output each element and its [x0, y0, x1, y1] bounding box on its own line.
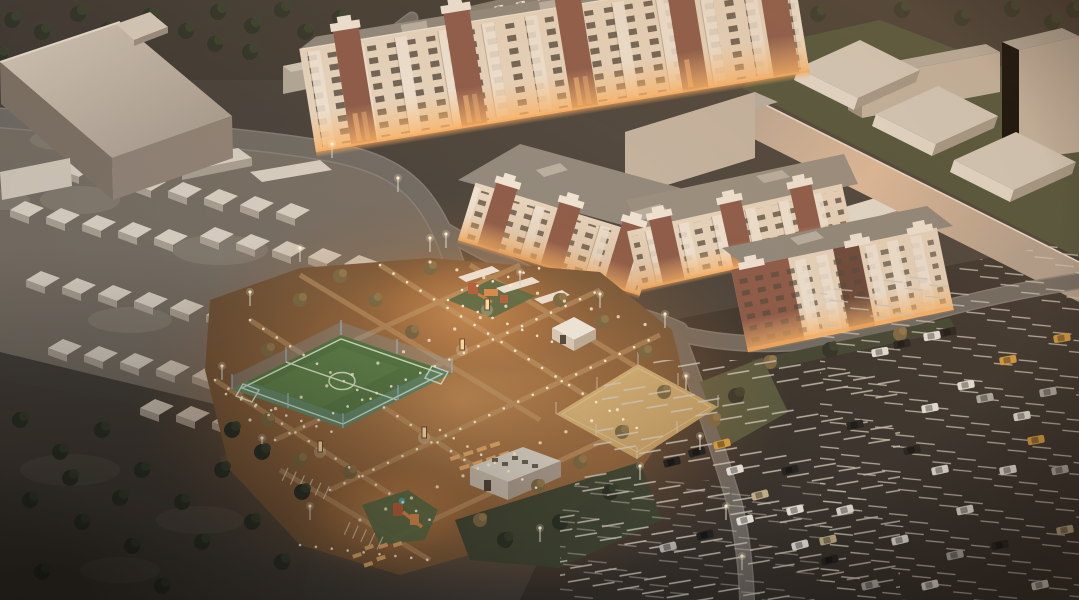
scene-render: 3d-architectural-aerial-render: [0, 0, 1079, 600]
render-viewport: 3d-architectural-aerial-render: [0, 0, 1079, 600]
atmosphere-overlays: [0, 0, 1079, 600]
